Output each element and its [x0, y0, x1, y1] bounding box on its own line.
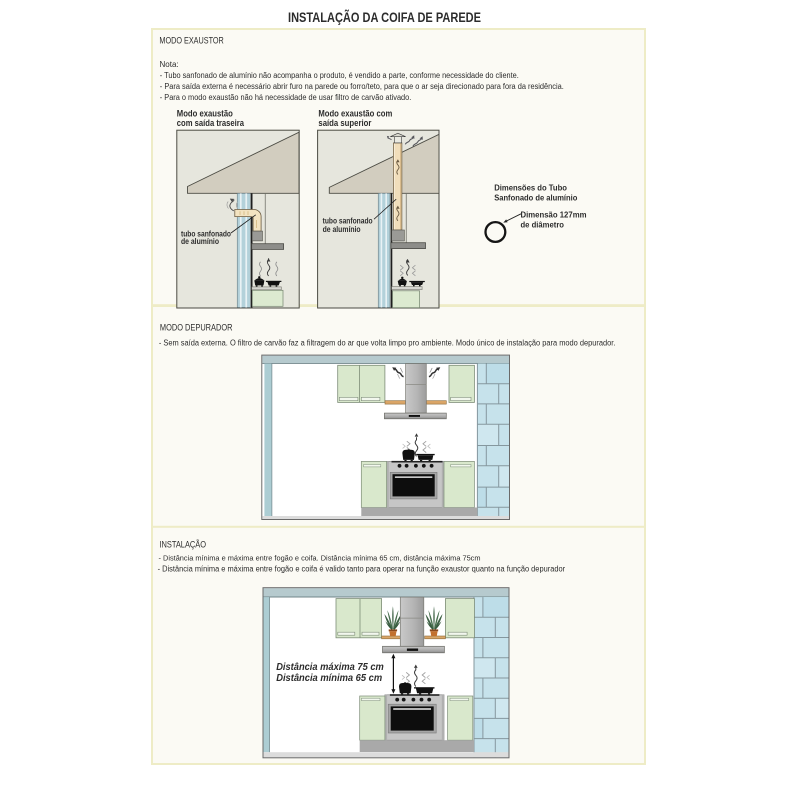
- svg-text:- Para saída externa é necessá: - Para saída externa é necessário abrir …: [160, 82, 564, 91]
- svg-text:- Tubo sanfonado de alumínio n: - Tubo sanfonado de alumínio não acompan…: [160, 71, 519, 80]
- svg-text:Nota:: Nota:: [160, 60, 179, 69]
- svg-text:saída superior: saída superior: [318, 118, 371, 128]
- svg-text:INSTALAÇÃO: INSTALAÇÃO: [159, 540, 206, 551]
- svg-text:Sanfonado de alumínio: Sanfonado de alumínio: [494, 193, 577, 203]
- svg-text:Distância máxima 75 cm: Distância máxima 75 cm: [276, 662, 384, 673]
- svg-text:- Distância mínima e máxima en: - Distância mínima e máxima entre fogão …: [158, 565, 566, 574]
- svg-text:Dimensão 127mm: Dimensão 127mm: [521, 210, 587, 220]
- svg-text:de alumínio: de alumínio: [323, 224, 361, 234]
- svg-text:MODO EXAUSTOR: MODO EXAUSTOR: [159, 36, 224, 47]
- svg-text:MODO DEPURADOR: MODO DEPURADOR: [160, 323, 233, 334]
- svg-text:de diâmetro: de diâmetro: [521, 220, 565, 230]
- svg-text:Distância mínima 65 cm: Distância mínima 65 cm: [276, 673, 382, 684]
- svg-text:com saída traseira: com saída traseira: [177, 118, 245, 128]
- svg-text:Dimensões do Tubo: Dimensões do Tubo: [494, 182, 567, 192]
- svg-text:INSTALAÇÃO DA COIFA DE PAREDE: INSTALAÇÃO DA COIFA DE PAREDE: [288, 10, 481, 25]
- svg-text:de alumínio: de alumínio: [181, 236, 219, 246]
- svg-text:- Para o modo exaustão não há: - Para o modo exaustão não há necessidad…: [160, 93, 411, 102]
- svg-text:- Distância mínima e máxima en: - Distância mínima e máxima entre fogão …: [159, 553, 481, 562]
- svg-text:- Sem saída externa. O filtro: - Sem saída externa. O filtro de carvão …: [159, 338, 616, 347]
